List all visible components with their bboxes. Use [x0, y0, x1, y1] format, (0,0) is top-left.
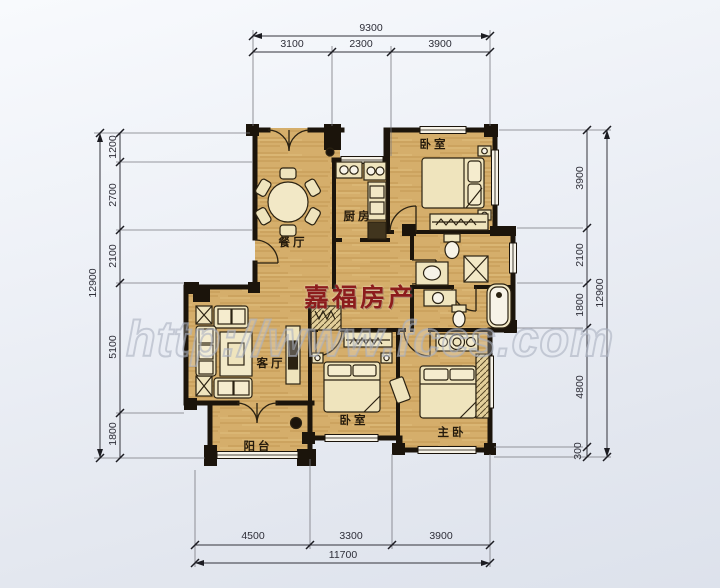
- watermark-url: http://www.fccs.com: [126, 310, 614, 368]
- bed-icon: [422, 146, 491, 230]
- floorplan-page: 餐厅 厨房 卧室 客厅 卧室 主卧 阳台 9300 3100 2300 3900…: [0, 0, 720, 588]
- watermark-brand: 嘉福房产: [304, 278, 416, 314]
